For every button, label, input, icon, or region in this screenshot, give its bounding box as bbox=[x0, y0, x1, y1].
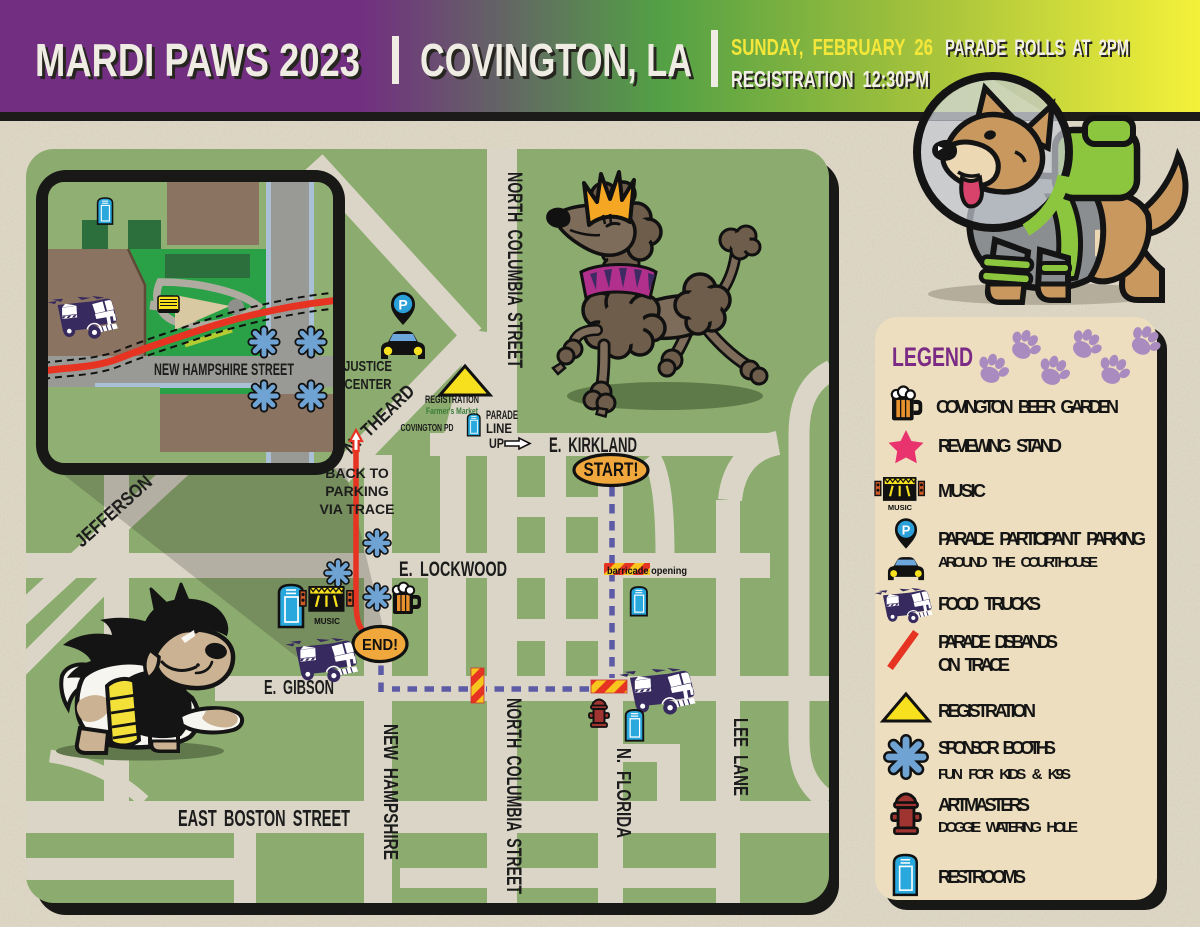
svg-text:MARDI PAWS 2023: MARDI PAWS 2023 bbox=[35, 34, 360, 86]
svg-text:COVINGTON, LA: COVINGTON, LA bbox=[420, 34, 692, 86]
svg-text:SUNDAY, FEBRUARY 26: SUNDAY, FEBRUARY 26 bbox=[731, 34, 933, 60]
svg-text:SPONSOR BOOTHS: SPONSOR BOOTHS bbox=[938, 738, 1056, 758]
svg-text:MUSIC: MUSIC bbox=[314, 617, 340, 626]
svg-text:REGISTRATION 12:30PM: REGISTRATION 12:30PM bbox=[731, 66, 929, 92]
svg-text:NORTH COLUMBIA STREET: NORTH COLUMBIA STREET bbox=[503, 172, 526, 368]
svg-text:UP: UP bbox=[489, 435, 504, 451]
svg-text:COVINGTON PD: COVINGTON PD bbox=[401, 422, 454, 434]
svg-text:N. FLORIDA: N. FLORIDA bbox=[612, 748, 634, 838]
svg-text:ARTMASTERS: ARTMASTERS bbox=[938, 795, 1030, 815]
svg-text:E. KIRKLAND: E. KIRKLAND bbox=[549, 434, 637, 457]
svg-text:LINE: LINE bbox=[486, 420, 512, 436]
svg-text:LEE LANE: LEE LANE bbox=[729, 718, 751, 796]
svg-text:REVIEWING STAND: REVIEWING STAND bbox=[938, 436, 1062, 456]
svg-text:NEW HAMPSHIRE STREET: NEW HAMPSHIRE STREET bbox=[154, 360, 294, 379]
svg-text:CENTER: CENTER bbox=[345, 376, 392, 393]
svg-text:E. LOCKWOOD: E. LOCKWOOD bbox=[399, 558, 507, 581]
svg-text:ON TRACE: ON TRACE bbox=[938, 655, 1010, 675]
svg-text:AROUND THE COURTHOUSE: AROUND THE COURTHOUSE bbox=[938, 554, 1098, 571]
svg-text:START!: START! bbox=[584, 460, 639, 481]
svg-text:REGISTRATION: REGISTRATION bbox=[938, 701, 1036, 721]
svg-text:VIA TRACE: VIA TRACE bbox=[320, 501, 395, 517]
svg-text:PARADE PARTICIPANT PARKING: PARADE PARTICIPANT PARKING bbox=[938, 529, 1146, 549]
svg-text:MUSIC: MUSIC bbox=[888, 503, 913, 512]
svg-text:END!: END! bbox=[362, 637, 398, 654]
svg-text:LEGEND: LEGEND bbox=[892, 342, 973, 372]
svg-text:NORTH COLUMBIA STREET: NORTH COLUMBIA STREET bbox=[502, 698, 525, 894]
svg-text:FUN FOR KIDS & K9S: FUN FOR KIDS & K9S bbox=[938, 766, 1071, 783]
svg-text:FOOD TRUCKS: FOOD TRUCKS bbox=[938, 594, 1041, 614]
svg-text:DOGGIE WATERING HOLE: DOGGIE WATERING HOLE bbox=[938, 819, 1078, 836]
svg-text:NEW HAMPSHIRE: NEW HAMPSHIRE bbox=[379, 724, 401, 860]
svg-text:JUSTICE: JUSTICE bbox=[344, 358, 392, 375]
svg-text:EAST BOSTON STREET: EAST BOSTON STREET bbox=[178, 805, 350, 831]
svg-text:PARKING: PARKING bbox=[325, 483, 389, 499]
svg-text:MUSIC: MUSIC bbox=[938, 481, 986, 501]
svg-text:barricade opening: barricade opening bbox=[607, 565, 687, 577]
svg-text:PARADE DISBANDS: PARADE DISBANDS bbox=[938, 632, 1058, 652]
svg-text:COVINGTON BEER GARDEN: COVINGTON BEER GARDEN bbox=[936, 397, 1119, 417]
svg-text:PARADE ROLLS AT 2PM: PARADE ROLLS AT 2PM bbox=[945, 35, 1129, 60]
svg-text:RESTROOMS: RESTROOMS bbox=[938, 867, 1026, 887]
svg-text:E. GIBSON: E. GIBSON bbox=[264, 677, 334, 699]
